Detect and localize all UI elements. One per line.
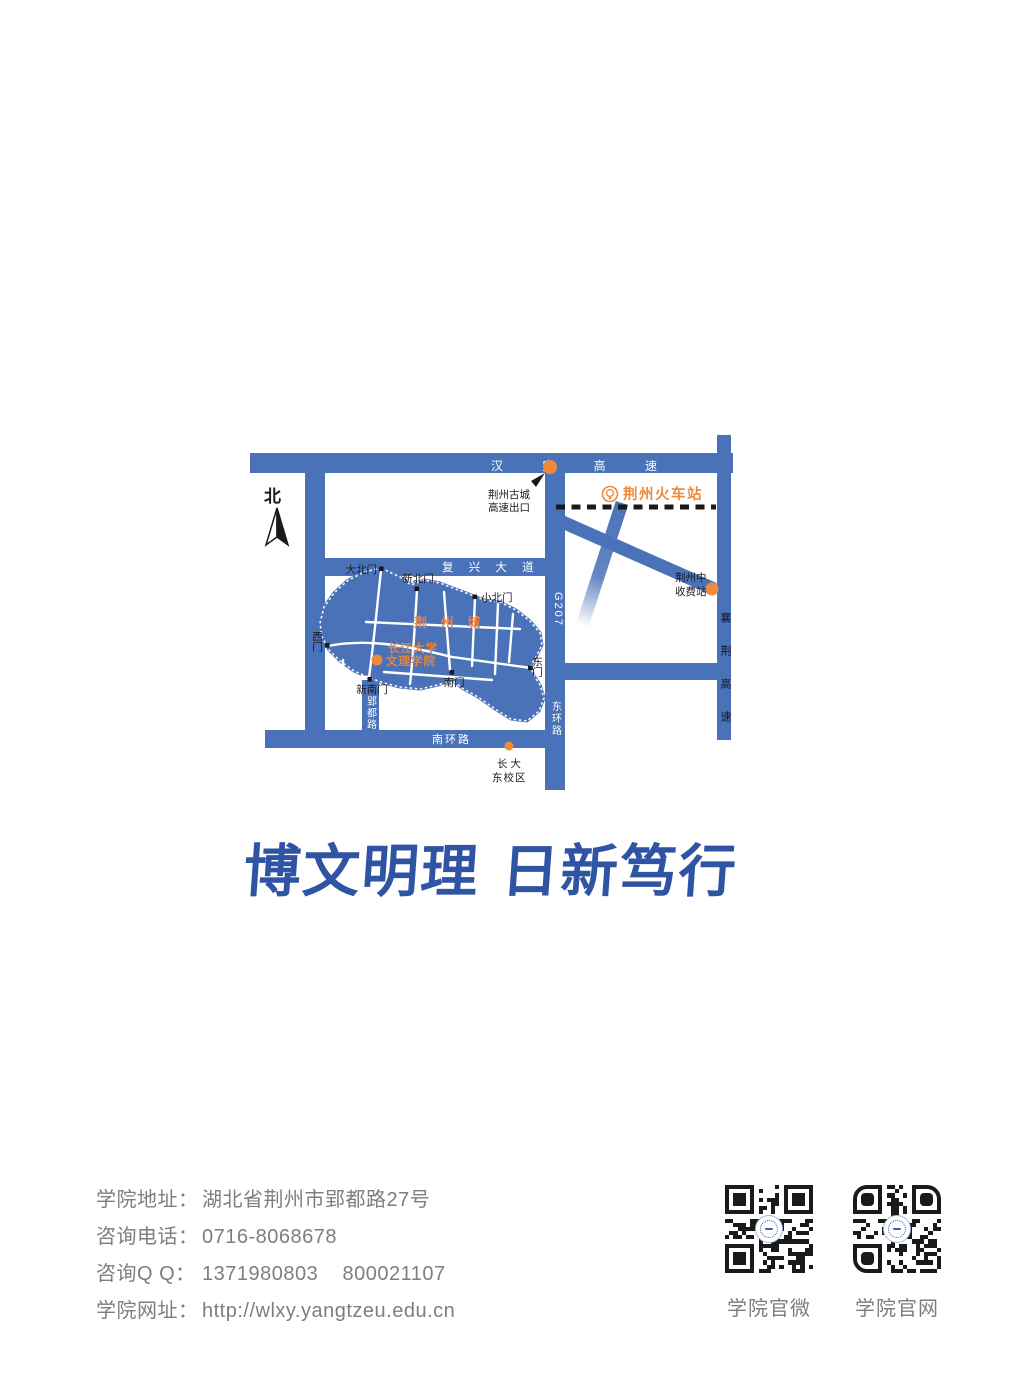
label-gate-small-north: 小北门 [481,591,513,604]
gate-dot-new-south [368,677,373,682]
motto-part1: 博文明理 [241,826,483,908]
label-campus-line2: 东校区 [492,771,527,784]
label-gate-south: 南门 [444,676,465,689]
qr-finder-icon [725,1244,754,1273]
contact-value-qq: 1371980803 800021107 [202,1256,446,1293]
website-qr-block [853,1185,941,1273]
contact-row-phone: 咨询电话： 0716-8068678 [96,1219,455,1256]
label-gate-big-north: 大北门 [346,563,378,576]
campus-marker-dot [505,742,514,751]
compass-needle-icon [266,508,277,545]
label-south-ring: 南环路 [432,733,471,746]
label-college-line1: 长江大学 [388,641,438,655]
qr-finder-icon [725,1185,754,1214]
gate-dot-south [450,670,455,675]
brochure-back-page: 北 汉 宜 高 速 复 兴 大 道 南环路 郢都路 G207 东环路 襄荆高速 … [0,0,1024,1399]
road-east-connector [545,663,731,680]
road-diagonal-fading [582,503,622,626]
compass-needle-dark-half [277,508,288,545]
compass-north: 北 [264,487,288,545]
contact-info-block: 学院地址： 湖北省荆州市郢都路27号 咨询电话： 0716-8068678 咨询… [96,1182,455,1330]
contact-row-qq: 咨询Q Q： 1371980803 800021107 [96,1256,455,1293]
website-qr-code [853,1185,941,1273]
label-campus-line1: 长 大 [497,757,521,770]
qr-center-logo-icon [883,1215,911,1243]
road-left-vertical [305,453,325,748]
qr-finder-icon [853,1185,882,1214]
motto-part2: 日新笃行 [499,826,741,908]
label-city-name: 荆 州 城 [414,615,485,630]
label-hanyi-expressway: 汉 宜 高 速 [491,458,675,473]
train-station-icon [603,487,618,502]
location-map: 北 汉 宜 高 速 复 兴 大 道 南环路 郢都路 G207 东环路 襄荆高速 … [248,430,738,800]
gate-dot-big-north [379,567,384,572]
gate-dot-new-north [415,587,420,592]
contact-row-address: 学院地址： 湖北省荆州市郢都路27号 [96,1182,455,1219]
label-xiangjing-expressway: 襄荆高速 [719,611,732,744]
label-gate-new-north: 新北门 [402,572,434,585]
contact-value-website: http://wlxy.yangtzeu.edu.cn [202,1293,455,1330]
college-marker-dot [372,655,383,666]
website-qr-label: 学院官网 [853,1292,941,1321]
exit-arrow-icon [531,473,545,487]
label-exit-line2: 高速出口 [488,501,530,514]
contact-value-address: 湖北省荆州市郢都路27号 [202,1182,430,1219]
qr-finder-icon [853,1244,882,1273]
wechat-qr-label: 学院官微 [725,1292,813,1321]
toll-marker-dot [706,583,719,596]
label-east-ring: 东环路 [550,700,562,737]
qr-finder-icon [784,1185,813,1214]
label-exit-line1: 荆州古城 [488,488,530,501]
wechat-qr-code [725,1185,813,1273]
label-railway-station: 荆州火车站 [623,485,703,503]
wechat-qr-block [725,1185,813,1273]
label-fuxing-avenue: 复 兴 大 道 [442,560,540,574]
contact-label-address: 学院地址： [96,1182,202,1219]
label-college-line2: 文理学院 [386,654,436,668]
exit-marker-dot [543,460,557,474]
label-toll-line2: 收费站 [675,585,707,598]
qr-finder-icon [912,1185,941,1214]
road-south-ring [265,730,565,748]
label-gate-east: 东门 [531,655,543,678]
label-g207: G207 [552,592,564,627]
contact-row-website: 学院网址： http://wlxy.yangtzeu.edu.cn [96,1293,455,1330]
gate-dot-west [325,643,330,648]
school-motto: 博文明理 日新笃行 [241,826,741,908]
label-gate-new-south: 新南门 [356,683,388,696]
contact-label-website: 学院网址： [96,1293,202,1330]
contact-value-phone: 0716-8068678 [202,1219,337,1256]
contact-label-qq: 咨询Q Q： [96,1256,202,1293]
gate-dot-small-north [473,595,478,600]
qr-center-logo-icon [755,1215,783,1243]
label-yingdu-road: 郢都路 [365,696,377,731]
label-toll-line1: 荆州中 [675,571,707,584]
compass-label: 北 [264,487,281,506]
contact-label-phone: 咨询电话： [96,1219,202,1256]
label-gate-west: 西门 [311,631,323,653]
